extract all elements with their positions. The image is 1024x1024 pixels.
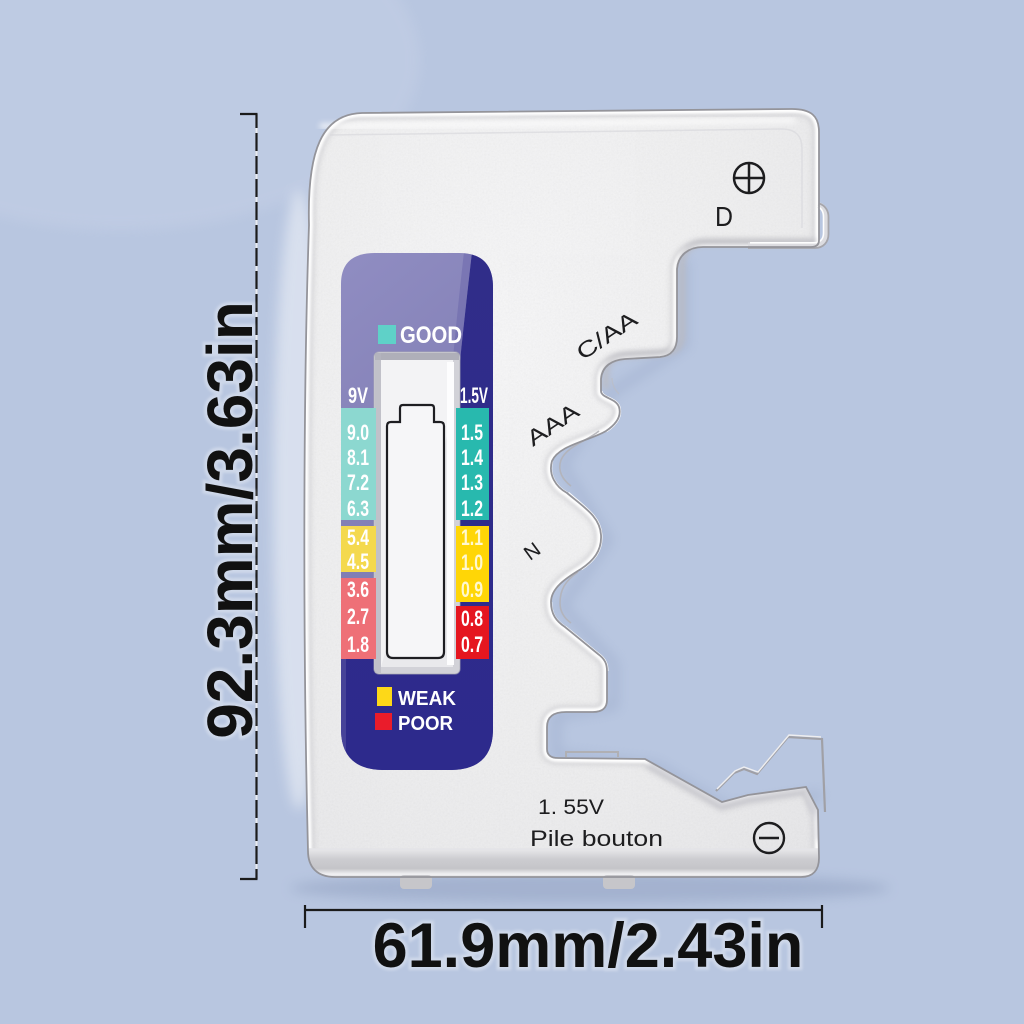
svg-text:0.9: 0.9 — [461, 577, 483, 602]
svg-text:1.2: 1.2 — [461, 496, 483, 521]
svg-text:POOR: POOR — [398, 713, 454, 735]
svg-text:0.7: 0.7 — [461, 632, 483, 657]
svg-text:9V: 9V — [348, 383, 368, 408]
svg-text:92.3mm/3.63in: 92.3mm/3.63in — [194, 301, 266, 739]
svg-text:4.5: 4.5 — [347, 549, 369, 574]
svg-text:1.8: 1.8 — [347, 632, 369, 657]
svg-text:6.3: 6.3 — [347, 496, 369, 521]
svg-text:2.7: 2.7 — [347, 604, 369, 629]
svg-text:1.4: 1.4 — [461, 445, 484, 470]
svg-text:3.6: 3.6 — [347, 577, 369, 602]
svg-text:D: D — [715, 201, 733, 232]
svg-text:WEAK: WEAK — [398, 688, 457, 710]
svg-text:8.1: 8.1 — [347, 445, 369, 470]
svg-text:9.0: 9.0 — [347, 420, 369, 445]
svg-text:5.4: 5.4 — [347, 525, 370, 550]
svg-text:1.0: 1.0 — [461, 550, 483, 575]
svg-text:1.3: 1.3 — [461, 470, 483, 495]
svg-text:0.8: 0.8 — [461, 606, 483, 631]
svg-text:GOOD: GOOD — [400, 322, 462, 349]
svg-text:1.5V: 1.5V — [460, 383, 488, 408]
svg-text:1.1: 1.1 — [461, 525, 483, 550]
svg-text:61.9mm/2.43in: 61.9mm/2.43in — [373, 911, 804, 981]
svg-text:7.2: 7.2 — [347, 470, 369, 495]
svg-text:Pile bouton: Pile bouton — [530, 826, 663, 851]
svg-text:1. 55V: 1. 55V — [538, 796, 604, 819]
svg-text:1.5: 1.5 — [461, 420, 483, 445]
